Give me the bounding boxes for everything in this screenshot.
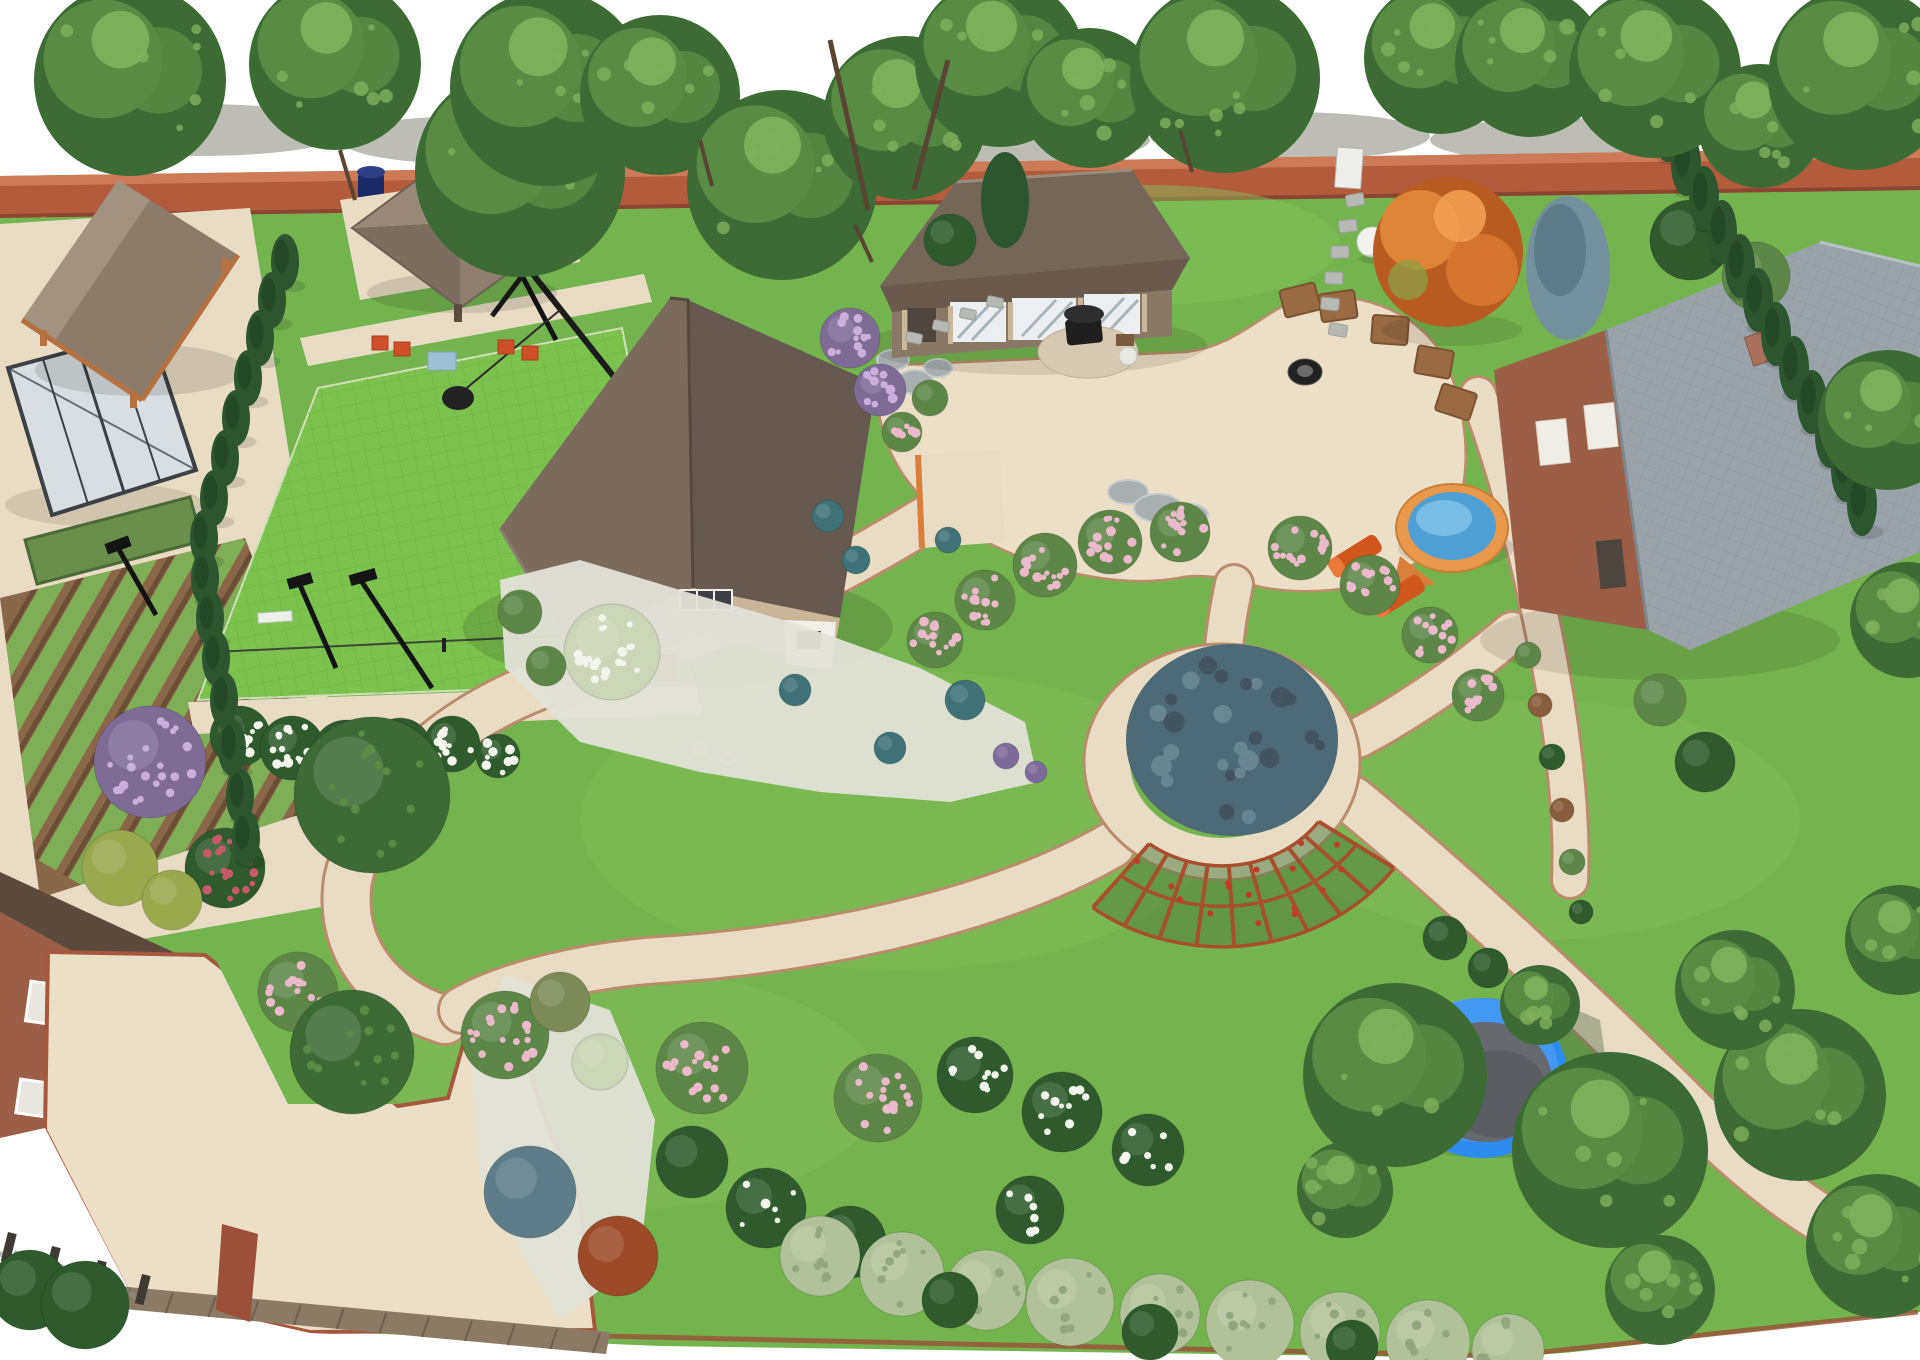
shrub-highlight (1542, 747, 1554, 759)
shrub-highlight (1553, 801, 1564, 812)
flower-dot (1244, 1323, 1250, 1329)
climbing-rose-dot (1255, 920, 1261, 926)
flower-dot (1165, 1163, 1173, 1171)
shrub-highlight (1333, 1327, 1356, 1350)
shrub-texture (1165, 693, 1177, 705)
leaf-dot (368, 24, 374, 30)
flower-dot (974, 599, 980, 605)
tree-canopy-highlight (1571, 1079, 1630, 1138)
leaf-dot (1815, 1109, 1825, 1119)
flower-dot (227, 839, 232, 844)
shrub-texture (1240, 678, 1252, 690)
flower-dot (1038, 1113, 1044, 1119)
flower-dot (373, 1055, 382, 1064)
leaf-dot (957, 31, 966, 40)
flower-dot (187, 769, 197, 779)
leaf-dot (1639, 1098, 1647, 1106)
flower-dot (590, 661, 599, 670)
flower-dot (377, 850, 385, 858)
flower-dot (500, 1037, 506, 1043)
flower-dot (1390, 585, 1397, 592)
flower-dot (1430, 613, 1436, 619)
tree-canopy-highlight (301, 2, 353, 54)
climbing-rose-dot (1225, 880, 1231, 886)
flower-dot (1114, 517, 1119, 522)
leaf-dot (1487, 58, 1494, 65)
flower-dot (166, 788, 175, 797)
conifer-shade (250, 316, 264, 350)
flower-dot (1024, 1194, 1032, 1202)
stepping-stone (1338, 219, 1357, 233)
right-house-window (1536, 419, 1570, 466)
flower-dot (711, 1084, 719, 1092)
flower-dot (284, 754, 291, 761)
leaf-dot (582, 49, 589, 56)
flower-dot (173, 725, 179, 731)
shrub-highlight (816, 504, 830, 518)
climbing-rose-dot (1298, 840, 1304, 846)
leaf-dot (1489, 37, 1496, 44)
flower-dot (1128, 1128, 1136, 1136)
flower-dot (170, 772, 179, 781)
flower-dot (407, 805, 415, 813)
flower-dot (505, 745, 515, 755)
court-bench (258, 611, 293, 623)
garden-gate (1335, 147, 1364, 189)
flower-dot (703, 1094, 711, 1102)
flower-dot (1314, 1333, 1320, 1339)
flower-dot (524, 1028, 530, 1034)
flower-dot (275, 1006, 285, 1016)
flower-dot (294, 988, 300, 994)
shrub-texture (1234, 767, 1245, 778)
leaf-dot (1882, 589, 1889, 596)
flower-dot (1481, 674, 1489, 682)
flower-dot (828, 348, 836, 356)
flower-dot (948, 639, 956, 647)
leaf-dot (1860, 20, 1873, 33)
tree-canopy-highlight (1823, 12, 1878, 67)
leaf-dot (1844, 411, 1852, 419)
flower-dot (634, 667, 640, 673)
shrub-texture (1249, 731, 1262, 744)
flower-dot (889, 1106, 897, 1114)
flower-dot (1031, 1226, 1039, 1234)
flower-dot (985, 1070, 991, 1076)
shrub-highlight (150, 878, 177, 905)
flower-dot (1144, 1152, 1151, 1159)
flower-dot (855, 1079, 862, 1086)
flower-dot (1065, 1119, 1074, 1128)
shrub-highlight (1473, 953, 1491, 971)
flower-dot (437, 731, 445, 739)
flower-dot (157, 762, 164, 769)
flower-dot (303, 1045, 312, 1054)
flower-dot (920, 1249, 925, 1254)
flower-dot (524, 1037, 530, 1043)
leaf-dot (1666, 1274, 1680, 1288)
conifer-shade (214, 678, 228, 712)
flower-dot (1502, 1321, 1510, 1329)
leaf-dot (1370, 1038, 1380, 1048)
flower-dot (250, 881, 256, 887)
flower-dot (1020, 567, 1029, 576)
flower-dot (1104, 542, 1112, 550)
flower-dot (387, 1024, 395, 1032)
climbing-rose-dot (1246, 892, 1252, 898)
leaf-dot (1827, 1111, 1841, 1125)
leaf-dot (1305, 1179, 1319, 1193)
flower-dot (719, 1094, 727, 1102)
flower-dot (1439, 632, 1447, 640)
timber-seat (1414, 345, 1454, 379)
flower-dot (365, 744, 375, 754)
flower-dot (361, 1080, 366, 1085)
flower-dot (722, 1046, 730, 1054)
leaf-dot (1531, 993, 1538, 1000)
leaf-dot (1803, 86, 1809, 92)
shrub-texture (1199, 656, 1217, 674)
flower-dot (853, 336, 859, 342)
tree-canopy-highlight (509, 17, 568, 76)
flower-dot (929, 632, 937, 640)
leaf-dot (874, 120, 886, 132)
flower-dot (1442, 1330, 1450, 1338)
flower-dot (629, 643, 635, 649)
flower-dot (662, 1060, 671, 1069)
conifer-shade (215, 436, 229, 470)
flower-dot (995, 1268, 1004, 1277)
leaf-dot (1899, 22, 1909, 32)
flower-dot (276, 734, 282, 740)
leaf-dot (1368, 1165, 1377, 1174)
flower-dot (467, 747, 473, 753)
flower-dot (497, 1004, 506, 1013)
flower-dot (202, 885, 211, 894)
flower-dot (991, 575, 998, 582)
flower-dot (1280, 553, 1286, 559)
flower-dot (1319, 538, 1329, 548)
leaf-dot (516, 79, 523, 86)
flower-dot (991, 1071, 998, 1078)
leaf-dot (1625, 1273, 1641, 1289)
leaf-dot (1209, 108, 1223, 122)
flower-dot (853, 314, 862, 323)
flower-dot (1330, 1310, 1339, 1319)
flower-dot (1075, 1085, 1084, 1094)
shrub-texture (1214, 669, 1228, 683)
shrub-texture (1217, 759, 1228, 770)
flower-dot (690, 1087, 698, 1095)
flower-dot (1012, 1285, 1018, 1291)
leaf-dot (60, 24, 73, 37)
flower-dot (840, 312, 849, 321)
flower-dot (895, 1073, 902, 1080)
climbing-rose-dot (1291, 906, 1297, 912)
climbing-rose-dot (1292, 911, 1298, 917)
shrub-highlight (1429, 922, 1449, 942)
conifer-shade (275, 240, 289, 274)
flower-dot (919, 617, 929, 627)
flower-dot (903, 1092, 911, 1100)
flower-dot (884, 1127, 891, 1134)
tree-canopy-highlight (1849, 1194, 1892, 1237)
conifer-shade (1693, 172, 1708, 210)
leaf-dot (1778, 156, 1790, 168)
flower-dot (1410, 1348, 1418, 1356)
leaf-dot (887, 141, 898, 152)
flower-dot (1226, 1345, 1232, 1351)
flower-dot (358, 731, 364, 737)
leaf-dot (1615, 48, 1626, 59)
flower-dot (680, 1040, 689, 1049)
leaf-dot (1733, 1006, 1744, 1017)
flower-dot (470, 1037, 476, 1043)
flower-dot (1097, 1287, 1105, 1295)
leaf-dot (1559, 19, 1575, 35)
climbing-rose-dot (1134, 858, 1140, 864)
leaf-dot (1306, 1157, 1318, 1169)
leaf-dot (1865, 386, 1872, 393)
leaf-dot (1734, 1126, 1749, 1141)
flower-dot (682, 1066, 692, 1076)
flower-dot (1121, 1152, 1130, 1161)
leaf-dot (555, 54, 562, 61)
leaf-dot (1398, 61, 1410, 73)
leaf-dot (1785, 1044, 1793, 1052)
flower-dot (775, 1218, 781, 1224)
flower-dot (254, 721, 262, 729)
flower-dot (692, 1059, 697, 1064)
flower-dot (485, 755, 490, 760)
leaf-dot (555, 86, 566, 97)
flower-dot (972, 588, 979, 595)
flower-dot (1059, 1103, 1064, 1108)
flower-dot (1059, 1286, 1067, 1294)
flower-dot (1351, 562, 1360, 571)
flower-dot (791, 1190, 797, 1196)
flower-dot (853, 326, 862, 335)
flower-dot (107, 762, 113, 768)
flower-dot (1413, 616, 1421, 624)
flower-dot (1415, 649, 1424, 658)
tree-canopy-highlight (1500, 8, 1545, 53)
flower-dot (283, 725, 291, 733)
leaf-dot (1865, 939, 1877, 951)
flower-dot (627, 621, 633, 627)
leaf-dot (448, 148, 456, 156)
shrub-texture (1234, 742, 1248, 756)
flower-dot (1320, 550, 1325, 555)
flower-dot (1086, 1272, 1092, 1278)
leaf-dot (968, 24, 980, 36)
flower-dot (504, 1062, 513, 1071)
leaf-dot (1689, 1282, 1703, 1296)
flower-dot (1093, 532, 1102, 541)
leaf-dot (1640, 1288, 1653, 1301)
flower-dot (1052, 580, 1061, 589)
flower-dot (218, 845, 225, 852)
shrub-highlight (929, 1279, 954, 1304)
flower-dot (979, 1082, 989, 1092)
flower-dot (1356, 1309, 1366, 1319)
flower-dot (1242, 1292, 1247, 1297)
flower-dot (1106, 526, 1116, 536)
shrub-highlight (938, 530, 950, 542)
flower-dot (354, 1060, 360, 1066)
flower-dot (361, 753, 367, 759)
flower-dot (1060, 1313, 1070, 1323)
right-house-window (1584, 403, 1618, 450)
swing-tire (442, 386, 474, 410)
conifer-shade (206, 636, 220, 670)
flower-dot (822, 1272, 832, 1282)
leaf-dot (1316, 1165, 1331, 1180)
tree-canopy-highlight (1062, 48, 1104, 90)
scene-canvas (0, 0, 1920, 1360)
flower-dot (381, 1077, 389, 1085)
shrub-highlight (1641, 681, 1664, 704)
conifer-shade (194, 516, 208, 550)
shrub-highlight (579, 1041, 604, 1066)
flower-dot (871, 401, 878, 408)
shrub-highlight (917, 385, 933, 401)
flower-dot (488, 747, 497, 756)
leaf-dot (1767, 121, 1778, 132)
stepping-stone (1320, 297, 1339, 311)
path-ring-stub (1224, 584, 1234, 648)
leaf-dot (1424, 1098, 1439, 1113)
conifer-shade (230, 774, 244, 808)
shrub-texture (1242, 810, 1256, 824)
leaf-dot (367, 92, 380, 105)
leaf-dot (1759, 1020, 1772, 1033)
leaf-dot (296, 101, 303, 108)
conifer-shade (1711, 206, 1726, 244)
leaf-dot (1884, 911, 1897, 924)
leaf-dot (1701, 997, 1710, 1006)
flower-dot (297, 961, 306, 970)
right-house-door (1596, 539, 1627, 589)
conifer-shade (204, 476, 218, 510)
shrub-highlight (1683, 740, 1710, 767)
shrub-highlight (1032, 1082, 1068, 1118)
conifer-shade (226, 396, 240, 430)
flower-dot (1103, 516, 1109, 522)
leaf-dot (1865, 620, 1880, 635)
flower-dot (879, 1094, 887, 1102)
leaf-dot (1341, 1074, 1348, 1081)
shrub-highlight (1562, 852, 1574, 864)
flower-dot (991, 600, 998, 607)
leaf-dot (1759, 147, 1770, 158)
flower-dot (482, 760, 492, 770)
shrub-highlight (996, 746, 1008, 758)
flower-dot (127, 763, 136, 772)
flower-dot (1066, 1103, 1072, 1109)
leaf-dot (1662, 1306, 1675, 1319)
flower-dot (711, 1065, 718, 1072)
leaf-dot (1531, 980, 1546, 995)
flower-dot (885, 385, 895, 395)
flower-dot (215, 835, 222, 842)
tree-canopy-highlight (1735, 81, 1772, 118)
shrub-highlight (665, 1135, 697, 1167)
flower-dot (931, 620, 938, 627)
flower-dot (896, 1301, 903, 1308)
conifer-shade (262, 278, 276, 312)
shrub-highlight (1518, 645, 1530, 657)
flower-dot (382, 767, 390, 775)
tree-canopy-highlight (1711, 947, 1747, 983)
flower-dot (249, 868, 258, 877)
leaf-dot (1372, 1105, 1383, 1116)
climbing-rose-dot (1207, 910, 1213, 916)
leaf-dot (1810, 1063, 1819, 1072)
shrub-highlight (1121, 1123, 1153, 1155)
shrub-texture (1214, 705, 1232, 723)
shrub-highlight (845, 1065, 885, 1105)
flower-dot (620, 660, 626, 666)
flower-dot (740, 1222, 745, 1227)
leaf-dot (940, 19, 953, 32)
stepping-stone (1325, 272, 1343, 285)
flower-dot (1362, 568, 1370, 576)
flower-dot (1428, 625, 1438, 635)
leaf-dot (1898, 912, 1909, 923)
flower-dot (1297, 554, 1306, 563)
flower-dot (936, 650, 942, 656)
shrub-texture (1182, 672, 1200, 690)
flower-dot (1153, 1296, 1158, 1301)
leaf-dot (176, 124, 183, 131)
flower-dot (904, 423, 910, 429)
leaf-dot (137, 51, 148, 62)
flower-dot (1123, 555, 1132, 564)
stepping-stone (1331, 246, 1349, 259)
leaf-dot (764, 132, 780, 148)
flower-dot (524, 1051, 529, 1056)
shrub-highlight (1028, 764, 1038, 774)
shrub-highlight (931, 221, 954, 244)
climbing-rose-dot (1338, 866, 1344, 872)
flower-dot (1271, 543, 1279, 551)
leaf-dot (1842, 1206, 1855, 1219)
flower-dot (1405, 1339, 1414, 1348)
flower-dot (896, 1240, 902, 1246)
tree-canopy-highlight (872, 59, 921, 108)
flower-dot (388, 840, 396, 848)
flower-dot (375, 761, 383, 769)
flower-dot (1086, 548, 1095, 557)
leaf-dot (191, 24, 201, 34)
leaf-dot (822, 154, 834, 166)
leaf-dot (1175, 119, 1184, 128)
flower-dot (467, 1029, 473, 1035)
flower-dot (1060, 1325, 1069, 1334)
flower-dot (1226, 1312, 1234, 1320)
flower-dot (347, 1030, 354, 1037)
flower-dot (1273, 552, 1280, 559)
climbing-rose-dot (1168, 883, 1174, 889)
shrub-texture (1315, 740, 1325, 750)
flower-dot (308, 994, 315, 1001)
flower-dot (1326, 1302, 1332, 1308)
flower-dot (1050, 1296, 1059, 1305)
flower-dot (1044, 570, 1049, 575)
flower-dot (1082, 1093, 1089, 1100)
flower-dot (1032, 572, 1042, 582)
